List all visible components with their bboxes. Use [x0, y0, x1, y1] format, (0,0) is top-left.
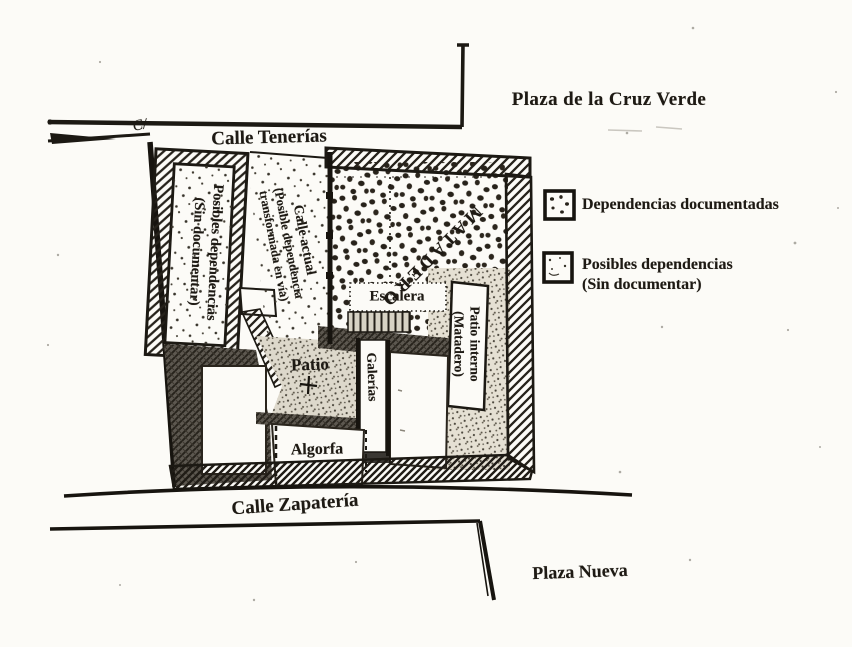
legend-possible-line1: Posibles dependencias [582, 255, 733, 275]
escalera-room-label: Escalera [370, 289, 425, 306]
scanned-plan-page: Plaza de la Cruz Verde Calle Tenerías C/… [0, 0, 852, 647]
galerias-room-label: Galerías [363, 352, 381, 401]
posibles-dependencias-room-label: Posibles dependencias (Sin documentar) [184, 183, 226, 321]
patio-room-label: Patio [291, 354, 329, 375]
legend-possible-label: Posibles dependencias (Sin documentar) [582, 255, 733, 295]
legend-possible-swatch-icon [544, 253, 572, 282]
legend-possible-line2: (Sin documentar) [582, 275, 733, 295]
patio-interno-line2: (Matadero) [450, 306, 466, 381]
plaza-nueva-label: Plaza Nueva [532, 560, 628, 584]
map-drawing [0, 0, 852, 647]
plaza-cruz-verde-label: Plaza de la Cruz Verde [512, 89, 707, 111]
unlabeled-room-shape [390, 352, 448, 468]
patio-interno-line1: Patio interno [466, 306, 482, 381]
patio-interno-room-label: Patio interno (Matadero) [450, 306, 483, 381]
calle-tenerias-label: Calle Tenerías [211, 125, 327, 150]
algorfa-room-label: Algorfa [291, 441, 344, 460]
legend-documented-swatch-icon [545, 191, 574, 219]
legend-documented-label: Dependencias documentadas [582, 195, 779, 215]
